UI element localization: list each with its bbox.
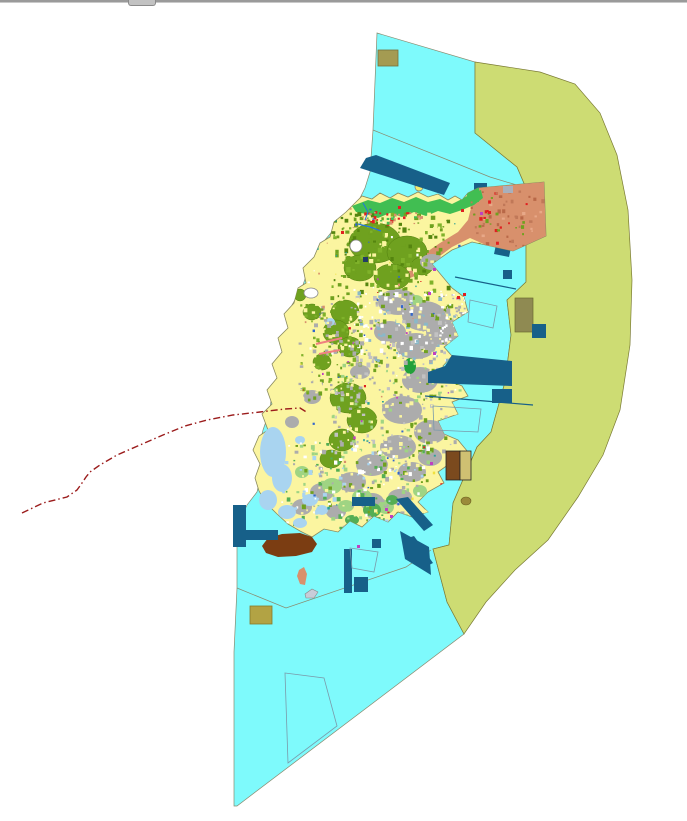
speckle bbox=[399, 436, 401, 438]
speckle bbox=[353, 236, 356, 239]
speckle bbox=[449, 338, 451, 340]
shallow-water-southwest bbox=[272, 464, 292, 492]
speckle bbox=[318, 273, 320, 275]
speckle bbox=[377, 292, 378, 293]
speckle bbox=[427, 461, 430, 465]
speckle bbox=[360, 493, 364, 497]
speckle bbox=[359, 333, 363, 337]
speckle bbox=[515, 245, 517, 247]
speckle bbox=[348, 348, 350, 350]
speckle bbox=[325, 388, 328, 391]
speckle bbox=[372, 377, 374, 380]
speckle bbox=[347, 307, 349, 309]
speckle bbox=[314, 270, 315, 271]
speckle bbox=[362, 414, 365, 416]
speckle bbox=[409, 435, 411, 437]
speckle bbox=[361, 353, 363, 355]
speckle bbox=[349, 327, 351, 329]
speckle bbox=[367, 270, 371, 274]
speckle bbox=[424, 323, 428, 326]
speckle bbox=[426, 442, 430, 445]
speckle bbox=[374, 382, 376, 385]
speckle bbox=[347, 415, 350, 418]
speckle bbox=[353, 376, 355, 377]
speckle bbox=[355, 332, 359, 336]
speckle bbox=[402, 227, 406, 232]
speckle bbox=[419, 452, 422, 454]
speckle bbox=[382, 333, 385, 336]
speckle bbox=[381, 217, 383, 220]
speckle bbox=[400, 386, 402, 388]
speckle bbox=[336, 255, 337, 257]
speckle bbox=[351, 307, 353, 309]
speckle bbox=[385, 477, 389, 482]
speckle bbox=[488, 200, 491, 203]
speckle bbox=[410, 359, 413, 362]
speckle bbox=[401, 305, 403, 308]
speckle bbox=[420, 256, 422, 259]
speckle bbox=[423, 376, 425, 378]
magenta-markers-dot bbox=[390, 515, 393, 518]
speckle bbox=[341, 397, 344, 401]
speckle bbox=[450, 444, 452, 445]
speckle bbox=[374, 271, 378, 275]
speckle bbox=[391, 381, 393, 383]
speckle bbox=[385, 269, 388, 272]
speckle bbox=[331, 243, 334, 247]
speckle bbox=[345, 231, 349, 234]
speckle bbox=[333, 234, 335, 236]
speckle bbox=[411, 313, 413, 316]
speckle bbox=[396, 375, 397, 377]
speckle bbox=[424, 334, 426, 336]
speckle bbox=[333, 497, 337, 502]
speckle bbox=[377, 319, 380, 322]
speckle bbox=[330, 384, 333, 386]
speckle bbox=[414, 272, 418, 277]
shallow-water-southwest bbox=[278, 505, 296, 519]
speckle bbox=[430, 451, 432, 453]
speckle bbox=[370, 426, 373, 429]
speckle bbox=[300, 469, 302, 471]
speckle bbox=[370, 487, 373, 489]
speckle bbox=[367, 507, 369, 509]
speckle bbox=[375, 320, 377, 323]
speckle bbox=[363, 488, 367, 491]
speckle bbox=[441, 233, 445, 236]
harbor-parcel-east-3 bbox=[532, 324, 546, 338]
speckle bbox=[353, 436, 356, 439]
speckle bbox=[464, 308, 466, 310]
speckle bbox=[309, 300, 311, 302]
speckle bbox=[314, 346, 316, 348]
speckle bbox=[323, 446, 327, 450]
speckle bbox=[398, 324, 400, 326]
speckle bbox=[372, 481, 375, 484]
speckle bbox=[398, 462, 400, 464]
speckle bbox=[358, 393, 360, 395]
speckle bbox=[405, 449, 409, 452]
magenta-markers-dot bbox=[433, 268, 436, 271]
speckle bbox=[423, 326, 427, 330]
speckle bbox=[406, 212, 408, 214]
speckle bbox=[388, 440, 391, 442]
speckle bbox=[411, 341, 415, 345]
speckle bbox=[301, 323, 304, 326]
speckle bbox=[398, 214, 400, 216]
speckle bbox=[526, 203, 528, 205]
speckle bbox=[529, 220, 532, 223]
speckle bbox=[430, 338, 432, 339]
speckle bbox=[380, 335, 382, 337]
speckle bbox=[322, 306, 325, 309]
speckle bbox=[350, 427, 352, 429]
speckle bbox=[347, 518, 349, 520]
speckle bbox=[397, 279, 401, 283]
speckle bbox=[398, 284, 400, 287]
speckle bbox=[450, 390, 453, 393]
speckle bbox=[359, 516, 362, 519]
speckle bbox=[359, 338, 362, 341]
speckle bbox=[358, 470, 362, 475]
speckle bbox=[319, 442, 321, 443]
speckle bbox=[345, 490, 347, 493]
speckle bbox=[392, 387, 395, 391]
speckle bbox=[403, 408, 406, 411]
speckle bbox=[379, 364, 381, 366]
speckle bbox=[404, 309, 406, 311]
speckle bbox=[490, 223, 492, 224]
speckle bbox=[362, 316, 364, 318]
speckle bbox=[394, 379, 397, 383]
speckle bbox=[342, 468, 344, 470]
speckle bbox=[442, 334, 446, 339]
speckle bbox=[479, 217, 482, 221]
speckle bbox=[417, 222, 419, 223]
speckle bbox=[495, 192, 497, 194]
speckle bbox=[359, 316, 362, 319]
speckle bbox=[330, 467, 332, 469]
speckle bbox=[406, 483, 409, 485]
speckle bbox=[508, 222, 510, 224]
speckle bbox=[425, 274, 427, 276]
speckle bbox=[424, 350, 428, 353]
speckle bbox=[312, 311, 315, 314]
speckle bbox=[410, 346, 413, 350]
gray-parcel-in-salmon bbox=[503, 186, 513, 193]
speckle bbox=[304, 469, 307, 473]
speckle bbox=[428, 432, 431, 434]
speckle bbox=[376, 512, 378, 514]
speckle bbox=[509, 241, 511, 243]
speckle bbox=[313, 337, 316, 340]
speckle bbox=[341, 514, 343, 517]
speckle bbox=[500, 226, 502, 228]
speckle bbox=[408, 446, 410, 447]
speckle bbox=[378, 223, 380, 225]
speckle bbox=[483, 223, 485, 225]
speckle bbox=[392, 298, 395, 300]
speckle bbox=[377, 327, 381, 330]
speckle bbox=[425, 342, 428, 345]
speckle bbox=[353, 358, 357, 362]
speckle bbox=[377, 484, 381, 488]
speckle bbox=[316, 516, 318, 519]
speckle bbox=[384, 448, 388, 452]
speckle bbox=[455, 307, 458, 309]
speckle bbox=[408, 229, 410, 231]
speckle bbox=[445, 385, 447, 387]
speckle bbox=[404, 299, 406, 302]
speckle bbox=[302, 493, 305, 497]
speckle bbox=[381, 396, 383, 398]
speckle bbox=[428, 235, 432, 239]
speckle bbox=[412, 454, 414, 457]
speckle bbox=[369, 259, 373, 263]
speckle bbox=[380, 481, 382, 483]
speckle bbox=[369, 209, 371, 211]
speckle bbox=[362, 491, 364, 493]
speckle bbox=[410, 307, 413, 309]
speckle bbox=[412, 318, 413, 319]
speckle bbox=[356, 323, 360, 326]
speckle bbox=[419, 311, 422, 314]
speckle bbox=[416, 340, 419, 343]
speckle bbox=[352, 269, 354, 271]
speckle bbox=[303, 445, 306, 447]
speckle bbox=[379, 389, 381, 391]
speckle bbox=[402, 376, 406, 379]
speckle bbox=[420, 307, 423, 310]
speckle bbox=[281, 501, 283, 503]
speckle bbox=[444, 436, 447, 440]
speckle bbox=[298, 319, 301, 321]
speckle bbox=[448, 314, 451, 316]
speckle bbox=[353, 342, 354, 344]
harbor-parcel-east-small bbox=[503, 270, 512, 279]
speckle bbox=[370, 231, 372, 233]
speckle bbox=[455, 389, 457, 391]
speckle bbox=[441, 306, 444, 308]
speckle bbox=[442, 332, 444, 334]
speckle bbox=[389, 479, 391, 481]
speckle bbox=[393, 294, 395, 295]
speckle bbox=[288, 445, 290, 447]
speckle bbox=[385, 405, 389, 408]
speckle bbox=[369, 356, 373, 359]
speckle bbox=[455, 314, 457, 316]
speckle bbox=[327, 507, 330, 510]
speckle bbox=[393, 349, 396, 351]
speckle bbox=[443, 351, 446, 354]
speckle bbox=[417, 324, 420, 328]
speckle bbox=[358, 234, 361, 236]
speckle bbox=[357, 229, 359, 232]
speckle bbox=[331, 443, 333, 445]
speckle bbox=[368, 516, 371, 518]
landuse-map-canvas[interactable] bbox=[0, 0, 687, 821]
speckle bbox=[343, 364, 347, 368]
speckle bbox=[424, 418, 427, 422]
speckle bbox=[446, 229, 449, 232]
speckle bbox=[345, 286, 348, 289]
speckle bbox=[522, 221, 525, 224]
speckle bbox=[414, 423, 417, 425]
speckle bbox=[303, 304, 305, 305]
speckle bbox=[373, 369, 376, 372]
speckle bbox=[416, 377, 418, 379]
speckle bbox=[414, 363, 416, 365]
speckle bbox=[454, 440, 457, 444]
speckle bbox=[354, 218, 357, 221]
speckle bbox=[342, 258, 345, 261]
speckle bbox=[384, 369, 387, 372]
speckle bbox=[374, 212, 376, 213]
speckle bbox=[386, 430, 389, 433]
speckle bbox=[342, 328, 345, 331]
speckle bbox=[393, 265, 397, 270]
speckle bbox=[406, 263, 410, 266]
speckle bbox=[350, 213, 352, 216]
speckle bbox=[420, 346, 424, 349]
speckle bbox=[423, 446, 425, 448]
speckle bbox=[373, 287, 374, 289]
speckle bbox=[471, 202, 473, 204]
speckle bbox=[427, 213, 431, 217]
speckle bbox=[399, 442, 403, 446]
speckle bbox=[381, 341, 385, 344]
speckle bbox=[499, 195, 502, 198]
speckle bbox=[458, 314, 461, 317]
speckle bbox=[396, 319, 399, 323]
speckle bbox=[371, 342, 374, 344]
speckle bbox=[349, 353, 351, 355]
speckle bbox=[415, 212, 417, 214]
speckle bbox=[341, 381, 343, 382]
speckle bbox=[359, 363, 362, 366]
speckle bbox=[336, 331, 339, 334]
speckle bbox=[389, 447, 392, 450]
speckle bbox=[335, 213, 339, 218]
speckle bbox=[363, 477, 366, 480]
speckle bbox=[309, 470, 313, 475]
speckle bbox=[440, 408, 442, 410]
speckle bbox=[405, 270, 408, 273]
speckle bbox=[426, 446, 430, 451]
speckle bbox=[418, 430, 422, 433]
speckle bbox=[295, 451, 299, 454]
speckle bbox=[349, 345, 351, 347]
speckle bbox=[316, 366, 320, 369]
speckle bbox=[346, 292, 349, 295]
harbor-block-east-small bbox=[492, 389, 512, 403]
speckle bbox=[372, 220, 375, 223]
speckle bbox=[452, 319, 454, 321]
speckle bbox=[345, 219, 349, 223]
speckle bbox=[346, 252, 347, 254]
speckle bbox=[313, 506, 315, 507]
speckle bbox=[320, 451, 322, 454]
speckle bbox=[356, 272, 358, 274]
speckle bbox=[315, 441, 317, 443]
speckle bbox=[395, 292, 399, 297]
speckle bbox=[430, 260, 434, 263]
speckle bbox=[376, 305, 379, 307]
speckle bbox=[407, 429, 411, 432]
speckle bbox=[390, 344, 391, 345]
speckle bbox=[388, 335, 392, 338]
speckle bbox=[347, 379, 350, 382]
speckle bbox=[329, 378, 333, 381]
speckle bbox=[340, 208, 341, 209]
speckle bbox=[380, 439, 384, 443]
speckle bbox=[346, 376, 348, 377]
speckle bbox=[401, 244, 405, 247]
speckle bbox=[359, 320, 362, 323]
speckle bbox=[479, 225, 482, 227]
speckle bbox=[419, 218, 421, 220]
speckle bbox=[362, 484, 365, 487]
speckle bbox=[350, 442, 353, 446]
speckle bbox=[384, 296, 388, 300]
speckle bbox=[461, 303, 463, 305]
speckle bbox=[340, 373, 342, 375]
speckle bbox=[410, 423, 413, 427]
speckle bbox=[445, 305, 447, 306]
speckle bbox=[445, 322, 447, 324]
speckle bbox=[388, 324, 391, 327]
speckle bbox=[335, 433, 339, 437]
speckle bbox=[333, 305, 336, 307]
speckle bbox=[364, 334, 366, 336]
speckle bbox=[332, 285, 334, 288]
speckle bbox=[333, 495, 335, 497]
speckle bbox=[407, 374, 410, 377]
speckle bbox=[401, 474, 403, 475]
speckle bbox=[341, 346, 344, 349]
speckle bbox=[415, 399, 419, 402]
speckle bbox=[360, 323, 364, 326]
speckle bbox=[344, 326, 347, 329]
speckle bbox=[410, 296, 413, 300]
speckle bbox=[390, 347, 392, 349]
speckle bbox=[385, 397, 388, 401]
speckle bbox=[541, 199, 544, 203]
speckle bbox=[360, 349, 363, 353]
speckle bbox=[345, 446, 347, 449]
speckle bbox=[390, 345, 392, 346]
speckle bbox=[522, 233, 524, 235]
speckle bbox=[423, 360, 427, 363]
speckle bbox=[286, 491, 288, 493]
speckle bbox=[302, 505, 306, 510]
speckle bbox=[374, 509, 377, 512]
speckle bbox=[389, 254, 391, 256]
speckle bbox=[419, 335, 421, 338]
speckle bbox=[318, 333, 320, 335]
speckle bbox=[382, 404, 384, 407]
speckle bbox=[324, 476, 326, 478]
speckle bbox=[300, 363, 301, 364]
speckle bbox=[403, 425, 407, 429]
speckle bbox=[383, 222, 384, 223]
speckle bbox=[332, 372, 334, 374]
speckle bbox=[387, 311, 391, 314]
speckle bbox=[347, 429, 349, 431]
speckle bbox=[349, 383, 351, 385]
speckle bbox=[357, 330, 359, 332]
speckle bbox=[300, 396, 303, 399]
